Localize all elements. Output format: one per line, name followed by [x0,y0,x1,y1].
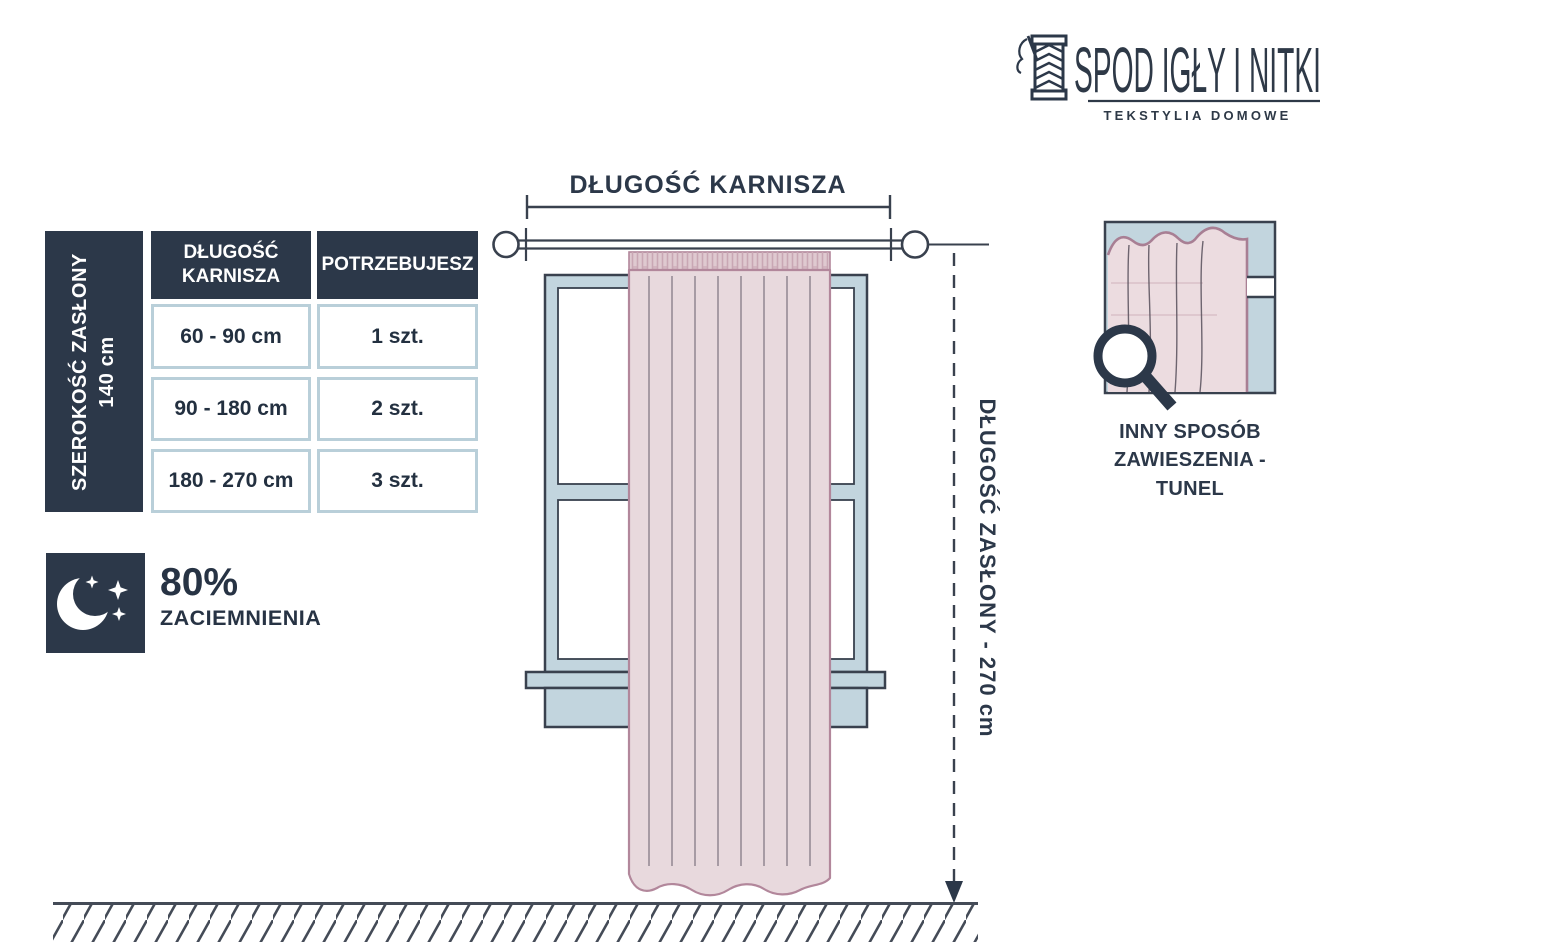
rod-finial-right [902,232,928,258]
brand-tagline: TEKSTYLIA DOMOWE [1085,108,1310,123]
tunnel-caption-line2: ZAWIESZENIA - TUNEL [1080,446,1300,503]
curtain-infographic: { "brand": { "name": "SPOD IGŁY I NITKI"… [0,0,1564,942]
brand-logo: SPOD IGŁY I NITKI [1070,40,1325,106]
floor [53,904,978,942]
curtain-length-label: DŁUGOŚĆ ZASŁONY - 270 cm [975,399,1000,738]
brand-name: SPOD IGŁY I NITKI [1074,40,1321,106]
window-curtain-diagram: DŁUGOŚĆ KARNISZA [40,160,1000,942]
rod-length-label: DŁUGOŚĆ KARNISZA [569,169,846,199]
curtain [629,252,830,895]
rod-pocket [1247,277,1275,297]
rod-finial-left [494,232,519,257]
tunnel-caption: INNY SPOSÓB ZAWIESZENIA - TUNEL [1080,418,1300,503]
arrowhead-down [945,881,963,903]
tunnel-hanging-detail [1085,215,1295,415]
tunnel-caption-line1: INNY SPOSÓB [1080,418,1300,446]
curtain-panel [629,270,830,895]
